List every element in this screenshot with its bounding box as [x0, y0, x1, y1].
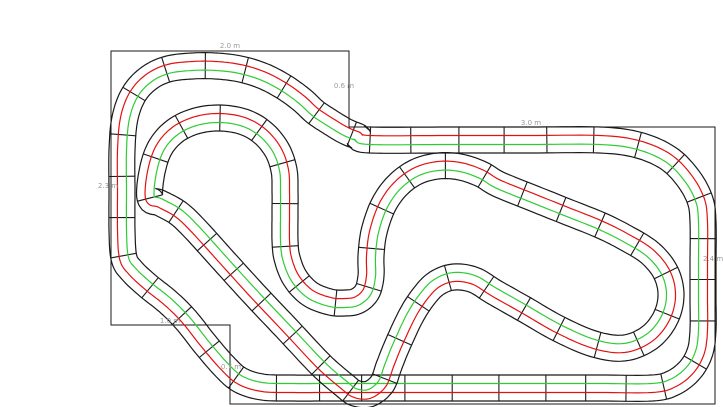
track-piece-inner-loop[interactable]	[137, 105, 685, 407]
dimension-label: 1.0 m	[160, 317, 180, 325]
dimension-label: 0.6 m	[334, 82, 354, 90]
dimension-label: 3.0 m	[521, 119, 541, 127]
track-plan-canvas[interactable]: 2.0 m0.6 m3.0 m2.4 m2.3 m1.0 m0.7 m	[0, 0, 723, 407]
track-border-left	[137, 105, 685, 407]
track-ties	[137, 105, 679, 401]
dimension-label: 2.3 m	[98, 182, 118, 190]
track-border-right	[135, 79, 690, 376]
lane-red	[145, 114, 676, 400]
dimension-labels: 2.0 m0.6 m3.0 m2.4 m2.3 m1.0 m0.7 m	[98, 42, 723, 371]
table-outline	[111, 51, 715, 404]
dimension-label: 2.0 m	[220, 42, 240, 50]
dimension-label: 2.4 m	[703, 255, 723, 263]
lane-green	[126, 70, 698, 384]
track-border-right	[156, 131, 658, 382]
track-plan-svg: 2.0 m0.6 m3.0 m2.4 m2.3 m1.0 m0.7 m	[0, 0, 723, 407]
dimension-label: 0.7 m	[221, 363, 241, 371]
lane-green	[154, 123, 667, 391]
